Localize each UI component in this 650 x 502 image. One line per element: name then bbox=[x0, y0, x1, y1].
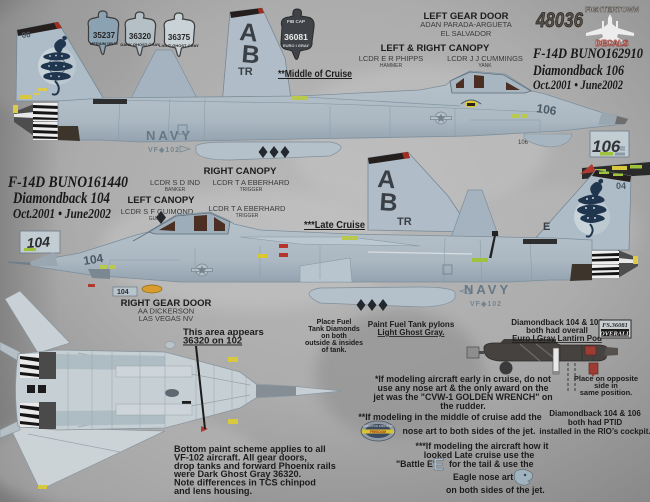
svg-text:both had PTID: both had PTID bbox=[568, 418, 622, 427]
svg-text:FIB CAP: FIB CAP bbox=[287, 19, 305, 24]
svg-text:FIGHTERTOWN: FIGHTERTOWN bbox=[585, 5, 639, 14]
svg-text:04: 04 bbox=[616, 181, 626, 191]
svg-text:"Battle E": "Battle E" bbox=[396, 459, 437, 469]
svg-text:TR: TR bbox=[397, 216, 412, 228]
svg-text:NAVY: NAVY bbox=[464, 282, 511, 297]
svg-text:the rudder.: the rudder. bbox=[440, 401, 485, 411]
svg-text:TR: TR bbox=[238, 66, 253, 78]
svg-text:TRIGGER: TRIGGER bbox=[240, 187, 263, 193]
svg-text:FS.36081: FS.36081 bbox=[602, 322, 628, 329]
svg-text:36375: 36375 bbox=[168, 33, 191, 42]
svg-text:Light Ghost Gray.: Light Ghost Gray. bbox=[378, 328, 445, 337]
svg-text:VF◆102: VF◆102 bbox=[470, 301, 502, 308]
svg-text:DARK GHOST GRAY: DARK GHOST GRAY bbox=[120, 42, 160, 47]
svg-text:OVERALL: OVERALL bbox=[600, 331, 630, 338]
svg-text:36320: 36320 bbox=[129, 32, 152, 41]
svg-text:EL SALVADOR: EL SALVADOR bbox=[441, 29, 492, 38]
svg-text:Place Fuel: Place Fuel bbox=[317, 319, 352, 326]
svg-text:35237: 35237 bbox=[93, 31, 116, 40]
svg-text:106: 106 bbox=[518, 140, 529, 146]
svg-text:Eagle nose art: Eagle nose art bbox=[453, 472, 513, 482]
svg-text:LCDR J J CUMMINGS: LCDR J J CUMMINGS bbox=[447, 54, 523, 63]
svg-text:installed in the RIO’s cockpit: installed in the RIO’s cockpit. bbox=[539, 427, 650, 436]
svg-text:LCDR T A EBERHARD: LCDR T A EBERHARD bbox=[209, 204, 286, 213]
svg-text:LIGHT GHOST GRAY: LIGHT GHOST GRAY bbox=[159, 43, 199, 48]
svg-text:***Late Cruise: ***Late Cruise bbox=[304, 220, 365, 231]
svg-text:Oct.2001 • June2002: Oct.2001 • June2002 bbox=[13, 207, 111, 222]
svg-text:of tank.: of tank. bbox=[322, 347, 347, 354]
svg-text:nose art to both sides of the: nose art to both sides of the jet. bbox=[403, 426, 536, 436]
svg-text:for the tail & use the: for the tail & use the bbox=[449, 459, 534, 469]
svg-text:LCDR S D IND: LCDR S D IND bbox=[150, 178, 201, 187]
svg-text:OPERATION ENDURING: OPERATION ENDURING bbox=[363, 424, 393, 428]
svg-text:TRIGGER: TRIGGER bbox=[236, 213, 259, 219]
svg-text:YANK: YANK bbox=[478, 63, 492, 69]
svg-text:B: B bbox=[379, 188, 399, 217]
svg-text:on both: on both bbox=[321, 333, 347, 340]
svg-text:LCDR T A EBERHARD: LCDR T A EBERHARD bbox=[213, 178, 290, 187]
svg-text:Diamondback 104: Diamondback 104 bbox=[12, 190, 110, 207]
svg-text:06: 06 bbox=[21, 30, 31, 40]
svg-text:EURO I GRAY: EURO I GRAY bbox=[283, 43, 309, 48]
svg-text:36320 on 102: 36320 on 102 bbox=[183, 336, 242, 347]
svg-text:Tank Diamonds: Tank Diamonds bbox=[308, 326, 360, 333]
svg-text:RIGHT CANOPY: RIGHT CANOPY bbox=[204, 166, 278, 177]
svg-text:48036: 48036 bbox=[535, 9, 583, 32]
svg-text:Oct.2001 • June2002: Oct.2001 • June2002 bbox=[533, 77, 623, 92]
svg-text:on both sides of the jet.: on both sides of the jet. bbox=[446, 485, 545, 495]
svg-text:HAMMER: HAMMER bbox=[380, 63, 403, 69]
svg-text:**Middle of Cruise: **Middle of Cruise bbox=[278, 69, 352, 80]
svg-text:LEFT CANOPY: LEFT CANOPY bbox=[127, 195, 195, 206]
svg-text:F-14D BUNO161440: F-14D BUNO161440 bbox=[7, 174, 128, 191]
svg-text:VF◆102: VF◆102 bbox=[148, 147, 180, 154]
svg-text:Diamondback 104 & 106: Diamondback 104 & 106 bbox=[549, 409, 641, 418]
svg-text:NAVY: NAVY bbox=[146, 128, 193, 143]
svg-text:MEDIUM GRAY: MEDIUM GRAY bbox=[90, 41, 119, 46]
svg-text:BANKER: BANKER bbox=[165, 187, 186, 193]
svg-text:LCDR E R PHIPPS: LCDR E R PHIPPS bbox=[359, 54, 424, 63]
svg-text:LAS VEGAS NV: LAS VEGAS NV bbox=[139, 314, 194, 323]
svg-text:**If modeling in the middle of: **If modeling in the middle of cruise ad… bbox=[358, 412, 541, 422]
svg-text:F-14D BUNO162910: F-14D BUNO162910 bbox=[532, 46, 643, 62]
svg-text:104: 104 bbox=[117, 289, 129, 296]
svg-text:and lens housing.: and lens housing. bbox=[174, 486, 252, 496]
svg-text:FREEDOM: FREEDOM bbox=[370, 430, 386, 434]
svg-text:ADAN PARADA-ARGUETA: ADAN PARADA-ARGUETA bbox=[420, 20, 511, 29]
svg-text:Euro I Gray Lantirn Pod: Euro I Gray Lantirn Pod bbox=[512, 334, 602, 343]
svg-text:36081: 36081 bbox=[284, 32, 308, 42]
svg-text:LEFT & RIGHT CANOPY: LEFT & RIGHT CANOPY bbox=[381, 43, 490, 54]
svg-text:outside & insides: outside & insides bbox=[305, 340, 363, 347]
svg-text:E: E bbox=[433, 455, 444, 474]
svg-text:same position.: same position. bbox=[580, 388, 633, 397]
svg-text:E: E bbox=[543, 221, 550, 233]
